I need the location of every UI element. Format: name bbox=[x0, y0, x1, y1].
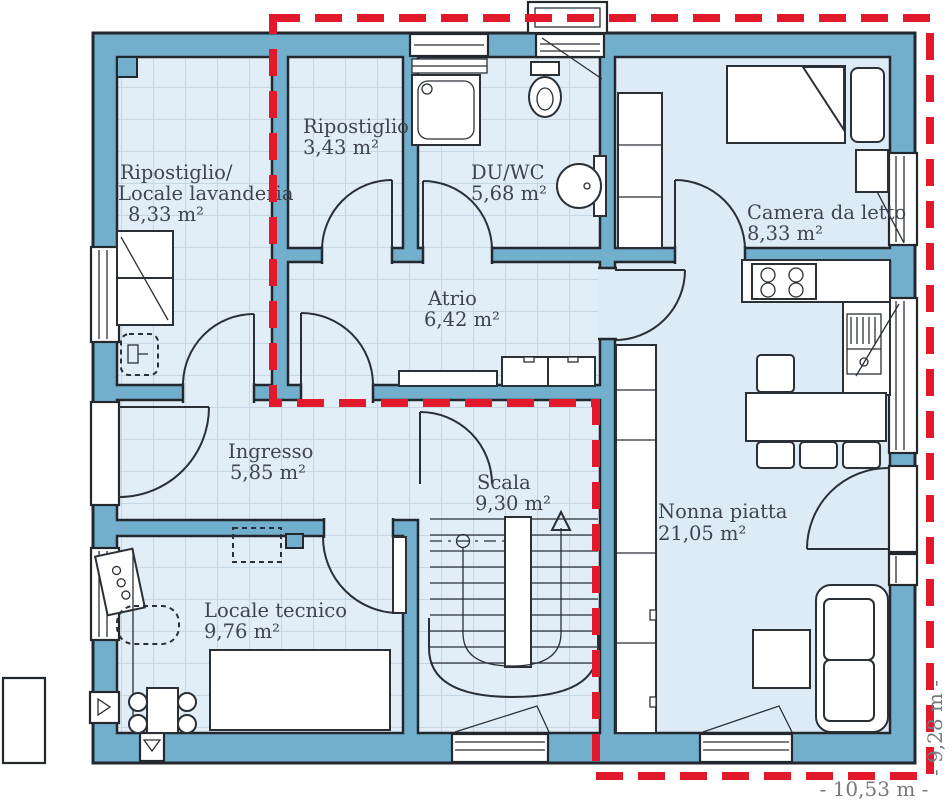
dryer bbox=[117, 278, 173, 325]
room-label-entrance: Ingresso bbox=[228, 440, 313, 463]
room-area-laundry: 8,33 m² bbox=[128, 203, 204, 226]
room-label-utility: Locale tecnico bbox=[204, 599, 347, 622]
coffee-table bbox=[753, 630, 810, 688]
sofa-cushion bbox=[824, 599, 874, 660]
kitchen-window bbox=[889, 298, 917, 453]
room-area-utility: 9,76 m² bbox=[204, 620, 280, 643]
equipment-block bbox=[210, 650, 390, 730]
pillow bbox=[851, 68, 884, 142]
room-area-bedroom: 8,33 m² bbox=[747, 222, 823, 245]
room-area-shower-wc: 5,68 m² bbox=[471, 182, 547, 205]
room-label-atrium: Atrio bbox=[427, 287, 477, 310]
room-label-granny-flat: Nonna piatta bbox=[658, 500, 788, 523]
living-side-window bbox=[889, 554, 917, 585]
dining-chair bbox=[757, 355, 794, 392]
bench bbox=[399, 371, 497, 386]
left-wall-vent bbox=[90, 692, 119, 723]
room-area-entrance: 5,85 m² bbox=[230, 461, 306, 484]
chair bbox=[178, 715, 196, 733]
shower bbox=[412, 75, 480, 145]
nightstand bbox=[856, 150, 888, 192]
bedroom-wardrobe bbox=[618, 93, 662, 248]
dining-chair bbox=[800, 442, 837, 468]
room-area-granny-flat: 21,05 m² bbox=[658, 522, 746, 545]
bottom-wall-vent bbox=[140, 733, 164, 761]
corner-pillar bbox=[117, 57, 137, 77]
toilet bbox=[529, 77, 561, 117]
room-label-laundry: Ripostiglio/ bbox=[120, 161, 233, 184]
room-area-storage: 3,43 m² bbox=[303, 136, 379, 159]
dimension-width: - 10,53 m - bbox=[820, 777, 929, 800]
wall-pillar bbox=[286, 534, 303, 548]
room-label-shower-wc: DU/WC bbox=[471, 161, 545, 184]
washbasin bbox=[557, 164, 601, 208]
chair bbox=[129, 715, 147, 733]
wardrobe-wall bbox=[616, 345, 656, 733]
room-area-atrium: 6,42 m² bbox=[424, 308, 500, 331]
dining-chair bbox=[757, 442, 794, 468]
floor-plan-page: Ripostiglio/ Locale lavanderia 8,33 m² R… bbox=[0, 0, 952, 800]
floor-plan-canvas: Ripostiglio/ Locale lavanderia 8,33 m² R… bbox=[0, 0, 952, 800]
room-label-storage: Ripostiglio bbox=[303, 115, 409, 138]
room-area-stairs: 9,30 m² bbox=[475, 492, 551, 515]
exterior-pad bbox=[3, 678, 45, 763]
laundry-window bbox=[91, 247, 119, 342]
dimension-height: - 9,28 m - bbox=[923, 680, 947, 776]
toilet-tank bbox=[531, 62, 559, 75]
chair bbox=[178, 693, 196, 711]
room-label-bedroom: Camera da letto bbox=[747, 201, 906, 224]
stair-spine bbox=[505, 517, 531, 667]
room-label-stairs: Scala bbox=[477, 471, 531, 494]
kitchen-sink bbox=[847, 314, 881, 374]
washer bbox=[117, 231, 173, 278]
dining-table bbox=[746, 393, 886, 441]
chair bbox=[129, 693, 147, 711]
top-window bbox=[410, 34, 488, 56]
dining-chair bbox=[843, 442, 880, 468]
utility-table bbox=[147, 688, 178, 733]
room-label-laundry-2: Locale lavanderia bbox=[118, 182, 294, 205]
sofa-cushion bbox=[824, 660, 874, 721]
